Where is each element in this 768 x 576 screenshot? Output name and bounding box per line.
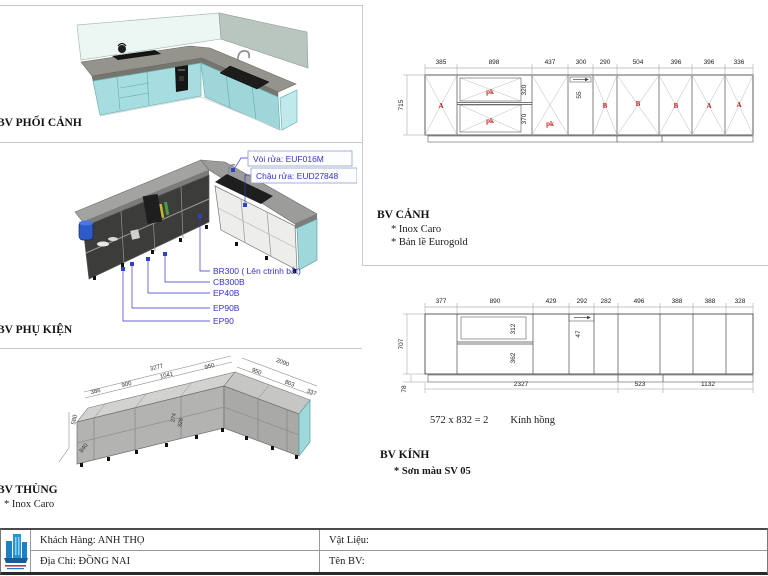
svg-text:pk: pk	[546, 120, 554, 128]
svg-text:B: B	[674, 102, 679, 110]
svg-text:55: 55	[576, 91, 583, 99]
svg-text:1132: 1132	[701, 381, 715, 388]
part-label: EP40B	[213, 288, 240, 298]
teal-end-panel	[297, 219, 317, 270]
title-block: Khách Hàng: ANH THỌ Vật Liệu: Địa Chỉ: Đ…	[0, 528, 768, 575]
divider-left-2	[0, 348, 362, 349]
elevation-upper: 385 898 437 300 290 504 396 396 336 715 …	[395, 50, 768, 150]
svg-text:2090: 2090	[275, 358, 290, 369]
svg-text:388: 388	[705, 298, 716, 305]
svg-text:386: 386	[90, 388, 102, 396]
svg-text:337: 337	[306, 388, 318, 397]
svg-text:898: 898	[489, 59, 500, 66]
divider-center	[362, 5, 363, 265]
svg-text:385: 385	[436, 59, 447, 66]
svg-text:B: B	[636, 100, 641, 108]
svg-text:300: 300	[576, 59, 587, 66]
dishes	[97, 242, 109, 247]
svg-text:312: 312	[510, 323, 517, 334]
elevation-glass: 377 890 429 292 282 496 388 388 328 707 …	[395, 285, 768, 407]
part-label: EP90B	[213, 303, 240, 313]
svg-text:3277: 3277	[150, 363, 165, 372]
drawing-sheet: { "colors": { "annotation_blue": "#3434c…	[0, 0, 768, 576]
svg-text:78: 78	[401, 385, 408, 393]
company-logo	[1, 530, 31, 572]
svg-text:290: 290	[600, 59, 611, 66]
svg-text:336: 336	[734, 59, 745, 66]
perspective-render	[60, 10, 350, 132]
svg-text:715: 715	[398, 99, 405, 110]
kettle	[118, 45, 126, 53]
divider-top-left	[0, 5, 362, 6]
svg-text:A: A	[736, 101, 741, 109]
svg-text:292: 292	[577, 298, 588, 305]
svg-text:396: 396	[671, 59, 682, 66]
part-label: EP90	[213, 316, 234, 326]
svg-text:950: 950	[251, 367, 263, 376]
accessories-render: Vòi rửa: EUF016M Chậu rửa: EUD27848 BR30…	[55, 148, 357, 334]
logo-buildings-icon	[3, 530, 29, 572]
glass-calc: 572 x 832 = 2	[430, 415, 488, 426]
svg-text:429: 429	[546, 298, 557, 305]
svg-text:A: A	[438, 102, 443, 110]
svg-text:388: 388	[672, 298, 683, 305]
svg-text:328: 328	[735, 298, 746, 305]
glass-spec: 572 x 832 = 2 Kính hồng	[430, 415, 555, 426]
part-label: CB300B	[213, 277, 245, 287]
svg-text:B: B	[603, 102, 608, 110]
view-label-phoi-canh: BV PHỐI CẢNH	[0, 117, 82, 129]
svg-text:362: 362	[510, 352, 517, 363]
material-field: Vật Liệu:	[319, 530, 767, 551]
address-field: Địa Chỉ: ĐỒNG NAI	[31, 551, 319, 572]
svg-text:2327: 2327	[514, 381, 529, 388]
thung-note: * Inox Caro	[4, 499, 54, 510]
svg-text:282: 282	[601, 298, 612, 305]
svg-text:pk: pk	[486, 88, 494, 96]
svg-text:950: 950	[204, 363, 216, 371]
view-label-thung: BV THÙNG	[0, 484, 58, 496]
svg-text:437: 437	[545, 59, 556, 66]
svg-text:523: 523	[635, 381, 646, 388]
plinth	[428, 136, 753, 142]
cabinet-end-panel	[280, 90, 297, 130]
drawing-name-field: Tên BV:	[319, 551, 767, 572]
svg-text:370: 370	[521, 113, 528, 124]
svg-text:890: 890	[490, 298, 501, 305]
svg-text:320: 320	[521, 84, 528, 95]
svg-text:504: 504	[633, 59, 644, 66]
svg-text:47: 47	[575, 330, 582, 338]
kinh-note: * Sơn màu SV 05	[394, 466, 471, 477]
svg-text:707: 707	[398, 338, 405, 349]
svg-text:900: 900	[121, 381, 133, 389]
svg-text:A: A	[706, 102, 711, 110]
glass-name: Kính hồng	[510, 415, 555, 426]
svg-text:pk: pk	[486, 117, 494, 125]
divider-right	[362, 265, 768, 266]
svg-text:496: 496	[634, 298, 645, 305]
divider-left-1	[0, 142, 362, 143]
view-label-kinh: BV KÍNH	[380, 449, 429, 461]
svg-text:803: 803	[284, 379, 296, 388]
sink-label: Chậu rửa: EUD27848	[256, 171, 339, 181]
view-label-canh: BV CẢNH	[377, 209, 430, 221]
view-label-phu-kien: BV PHỤ KIỆN	[0, 324, 72, 336]
customer-field: Khách Hàng: ANH THỌ	[31, 530, 319, 551]
svg-text:396: 396	[704, 59, 715, 66]
part-label: BR300 ( Lên ctrinh bắt)	[213, 266, 301, 276]
carcass-wireframe: 3277 386 900 1041 950 2090 950 803 337 5…	[55, 350, 345, 482]
svg-text:377: 377	[436, 298, 447, 305]
canh-note-2: * Bản lề Eurogold	[391, 237, 468, 248]
faucet-label: Vòi rửa: EUF016M	[253, 154, 324, 164]
canh-note-1: * Inox Caro	[391, 224, 441, 235]
